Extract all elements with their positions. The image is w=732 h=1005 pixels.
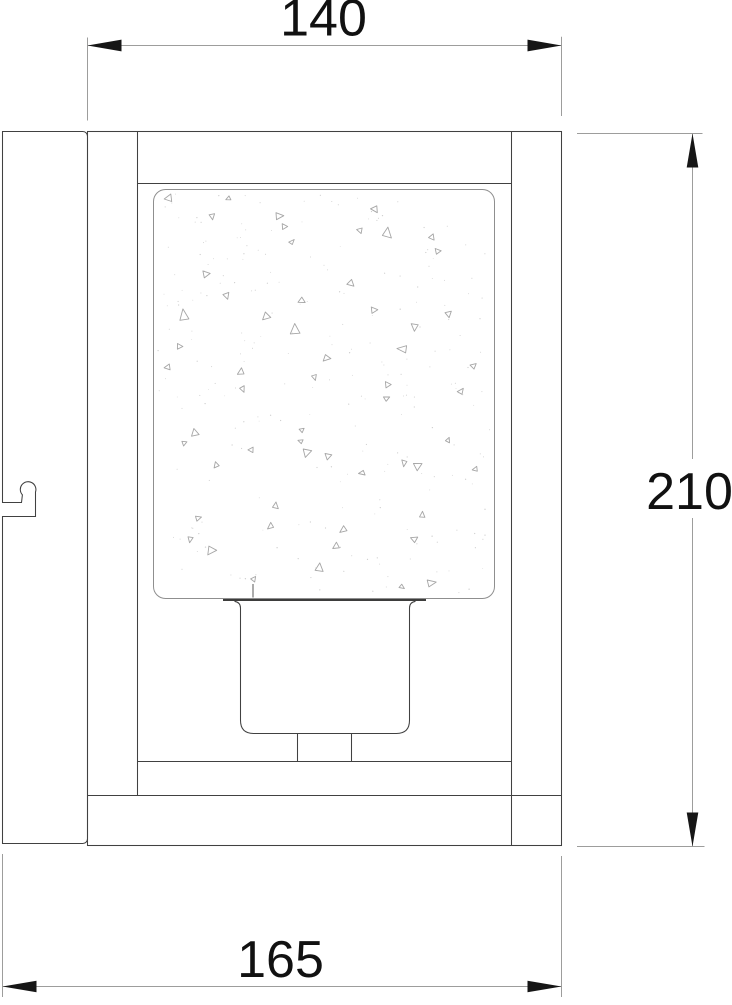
svg-text:165: 165 (237, 931, 324, 989)
svg-text:210: 210 (646, 463, 732, 521)
svg-text:140: 140 (280, 0, 367, 48)
